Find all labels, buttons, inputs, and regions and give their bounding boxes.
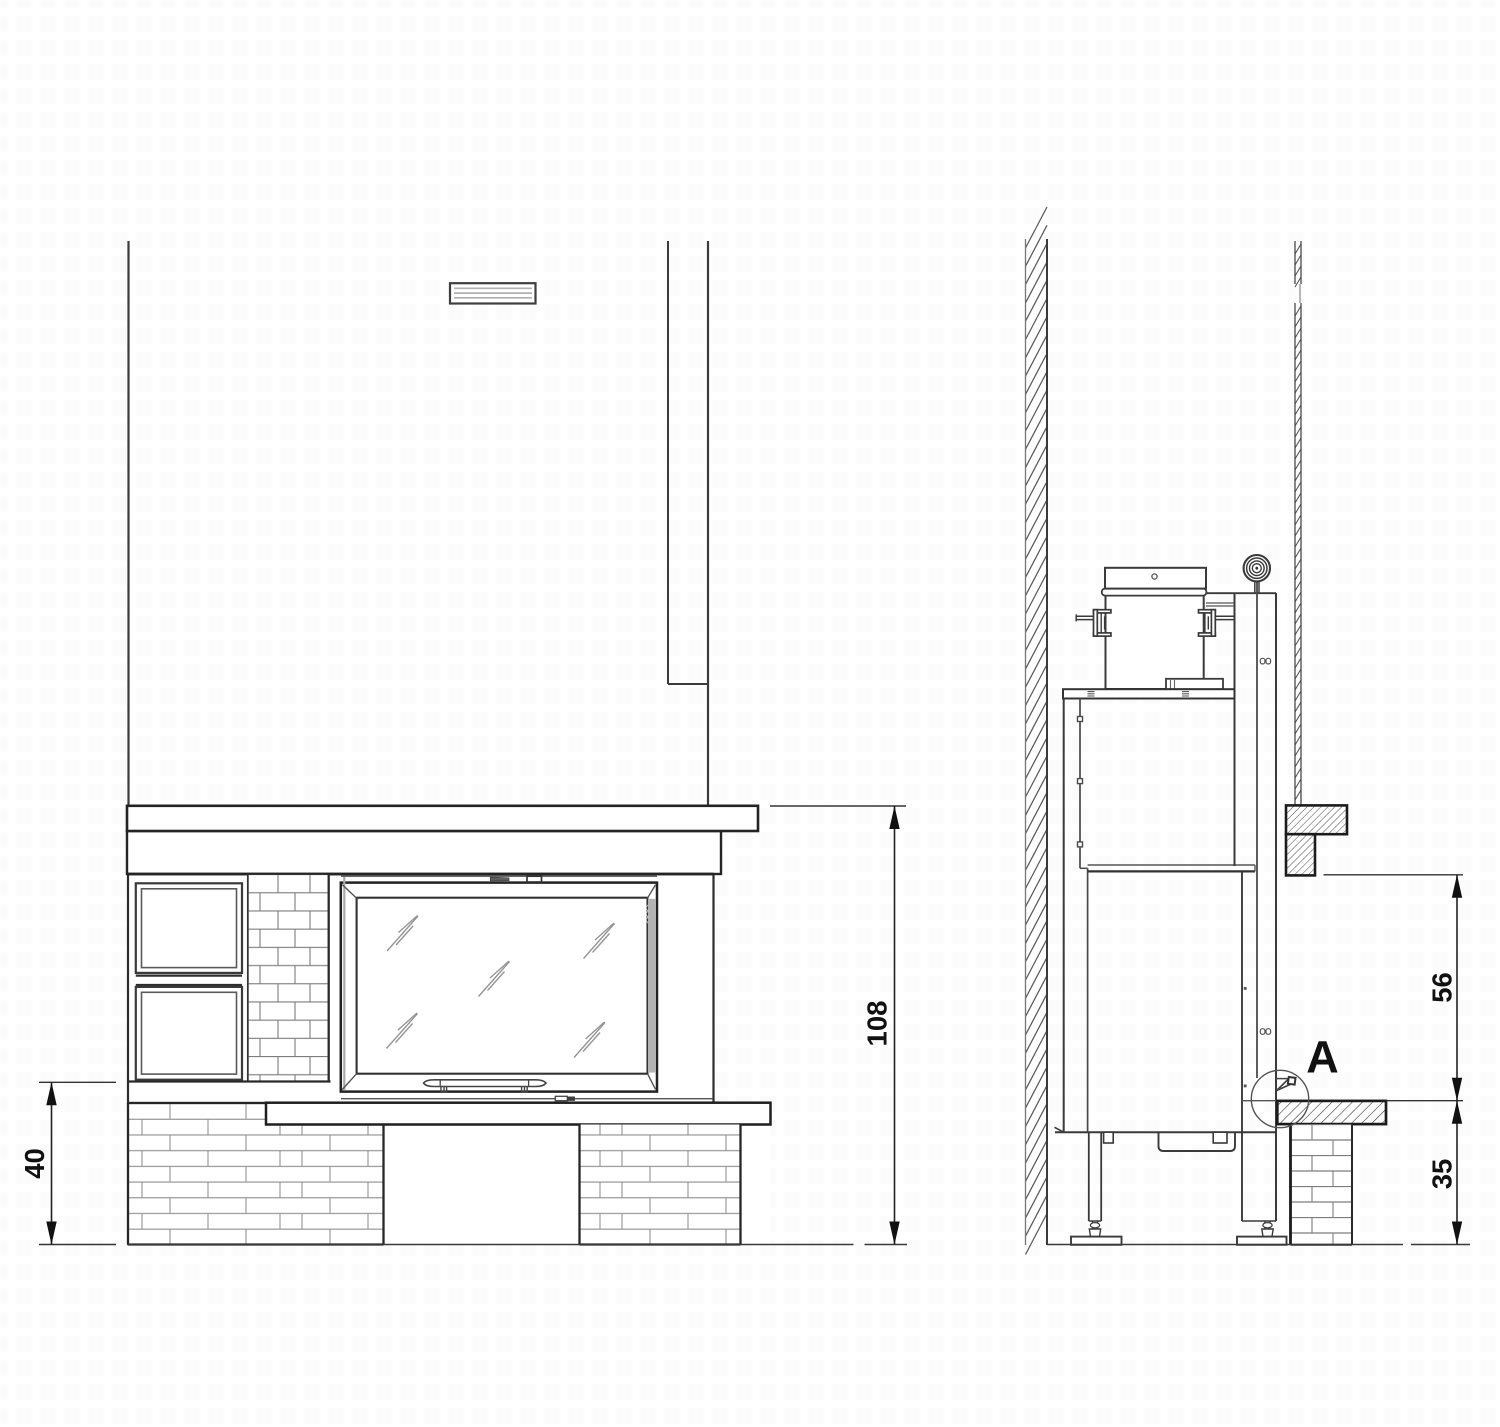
svg-text:40: 40 (19, 1148, 50, 1179)
svg-text:A: A (1306, 1032, 1339, 1083)
svg-text:35: 35 (1426, 1159, 1457, 1190)
svg-text:108: 108 (861, 1001, 892, 1047)
svg-text:56: 56 (1426, 972, 1457, 1003)
